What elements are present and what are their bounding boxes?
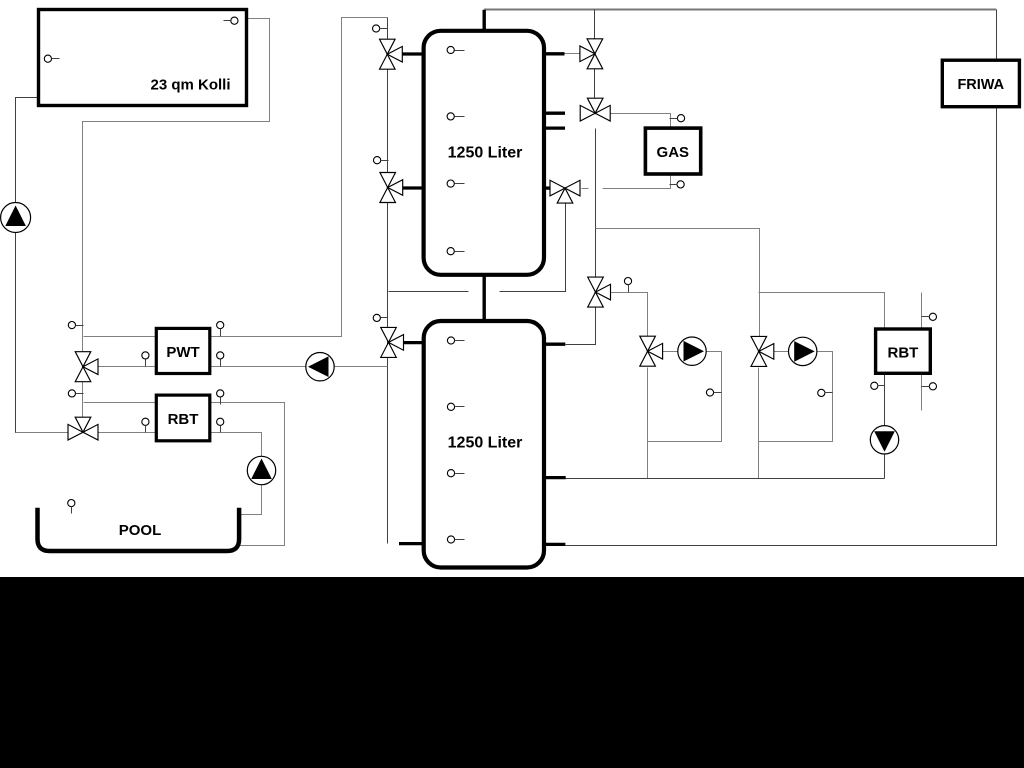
svg-text:RBT: RBT — [887, 345, 918, 362]
svg-text:GAS: GAS — [657, 144, 690, 161]
svg-text:RBT: RBT — [168, 411, 199, 428]
svg-text:PWT: PWT — [166, 344, 199, 361]
svg-text:FRIWA: FRIWA — [957, 77, 1004, 93]
svg-text:1250 Liter: 1250 Liter — [448, 145, 523, 162]
svg-text:POOL: POOL — [119, 522, 162, 539]
svg-text:1250 Liter: 1250 Liter — [448, 434, 523, 451]
svg-text:23 qm Kolli: 23 qm Kolli — [150, 77, 230, 94]
